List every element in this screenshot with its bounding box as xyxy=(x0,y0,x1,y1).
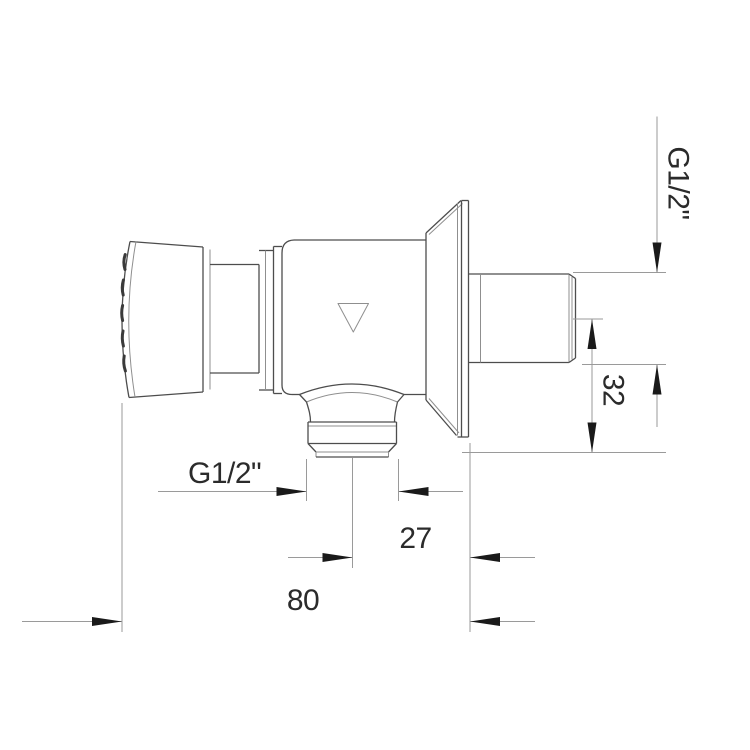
dim-label-outlet-to-wall: 27 xyxy=(399,522,431,555)
dim-outlet-to-wall: 27 xyxy=(288,443,535,632)
dim-label-bottom-thread: G1/2" xyxy=(188,457,261,490)
push-button xyxy=(122,242,210,398)
dim-label-side-thread: G1/2" xyxy=(662,146,695,219)
dim-arrow xyxy=(588,319,597,349)
dim-side-thread: G1/2" xyxy=(573,117,695,428)
dim-arrow xyxy=(588,423,597,453)
dim-arrow xyxy=(323,553,353,562)
dim-label-overall-depth: 80 xyxy=(287,584,319,617)
stem xyxy=(210,247,282,394)
dim-arrow xyxy=(277,487,307,496)
dim-label-axis-offset: 32 xyxy=(597,374,630,406)
bottom-outlet xyxy=(300,384,405,457)
dim-axis-offset: 32 xyxy=(462,319,666,453)
technical-drawing: G1/2" 32 G1/2" 27 80 xyxy=(0,0,750,750)
dim-arrow xyxy=(470,553,500,562)
wall-flange xyxy=(426,201,469,438)
dim-bottom-thread: G1/2" xyxy=(158,457,463,501)
flow-direction-triangle-icon xyxy=(338,304,369,333)
dim-arrow xyxy=(653,243,662,273)
valve-body xyxy=(282,240,426,395)
side-pipe xyxy=(469,274,576,363)
dim-arrow xyxy=(399,487,429,496)
dim-arrow xyxy=(470,617,500,626)
dim-arrow xyxy=(653,365,662,395)
dim-arrow xyxy=(92,617,122,626)
